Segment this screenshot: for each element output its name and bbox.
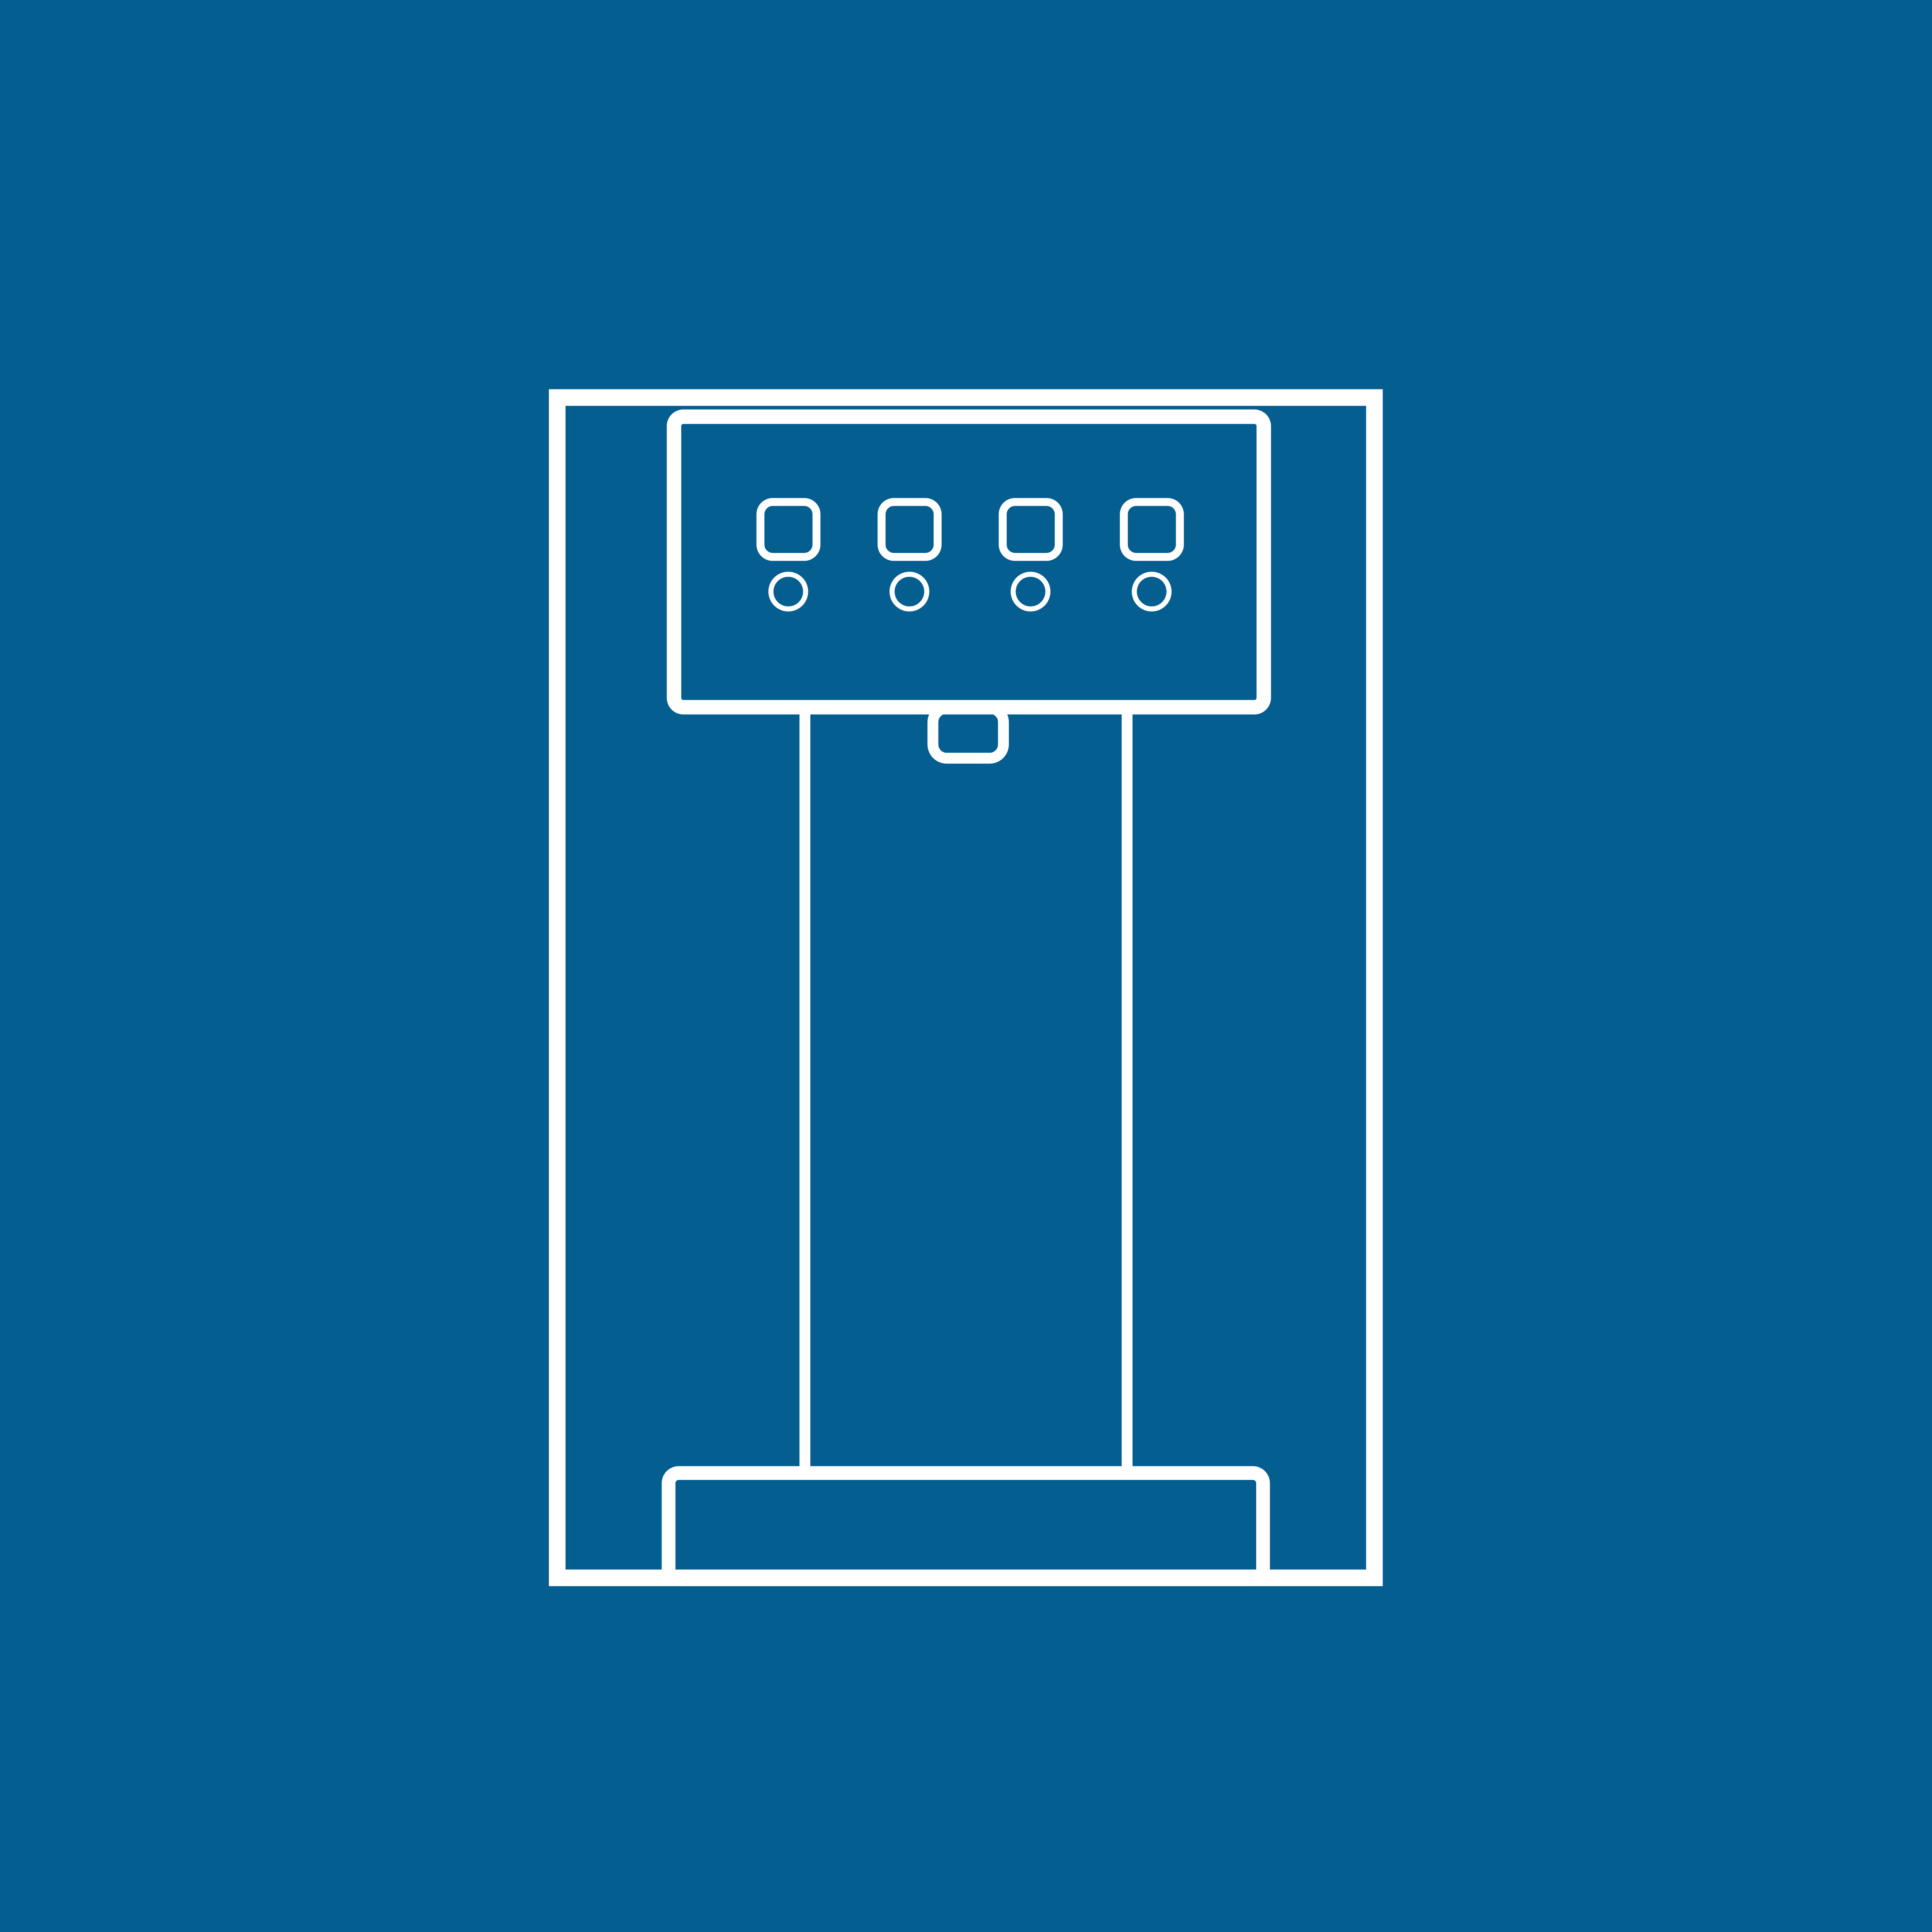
icon-canvas xyxy=(0,0,1932,1932)
icon-background xyxy=(0,0,1932,1932)
water-dispenser-icon xyxy=(0,0,1932,1932)
